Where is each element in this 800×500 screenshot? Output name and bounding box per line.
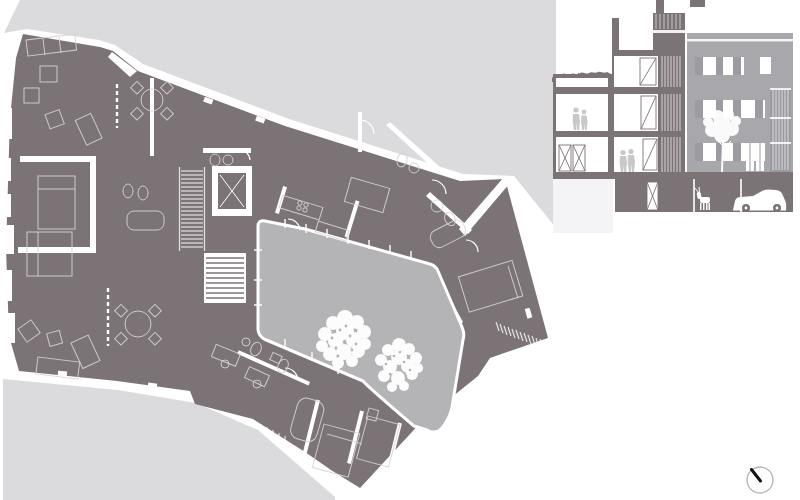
- basement-garage: [615, 179, 793, 212]
- architectural-drawing: [0, 0, 800, 500]
- north-arrow-icon: [747, 467, 773, 493]
- architectural-sheet: [0, 0, 800, 500]
- corner-bay: [770, 88, 791, 172]
- section-underlay: [553, 179, 613, 233]
- sectioned-building: [552, 0, 705, 172]
- ground-slab: [553, 172, 793, 179]
- roof-volume-hatched: [653, 13, 685, 52]
- section-elevation-drawing: [552, 0, 793, 233]
- staircase: [204, 253, 246, 303]
- elevator-core: [212, 166, 252, 216]
- street-facade: [687, 33, 793, 172]
